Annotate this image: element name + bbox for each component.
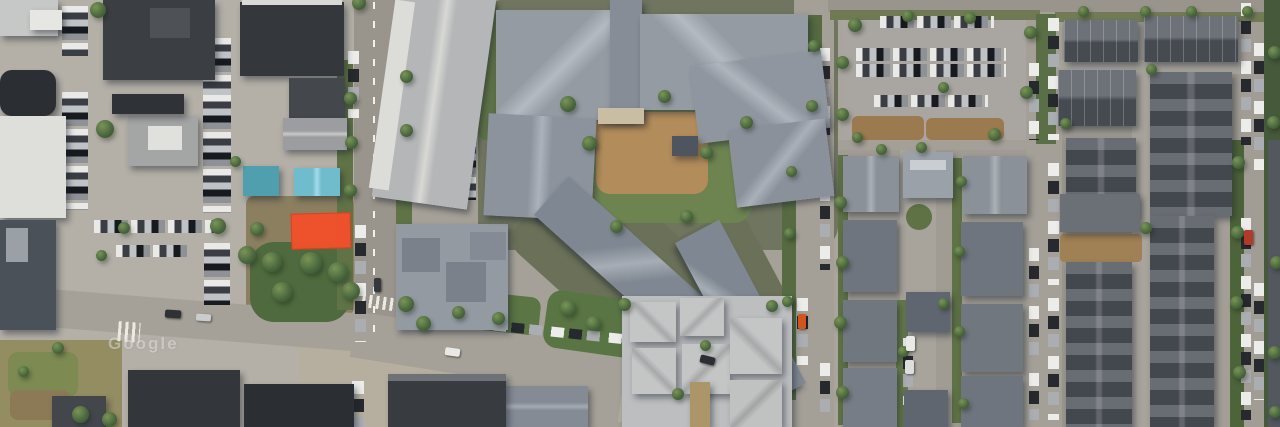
tree	[1267, 116, 1280, 129]
tree	[1233, 366, 1246, 379]
roof-detail	[150, 8, 190, 38]
tree	[1020, 86, 1033, 99]
condo-block	[961, 304, 1023, 372]
car	[798, 314, 806, 329]
quonset-building	[0, 70, 56, 116]
tree	[658, 90, 671, 103]
traffic-island	[906, 204, 932, 230]
parked-cars	[856, 64, 1006, 77]
tree	[836, 56, 849, 69]
tree	[784, 228, 795, 239]
tree	[680, 210, 693, 223]
tree	[416, 316, 431, 331]
tree	[272, 282, 292, 302]
tree	[938, 298, 949, 309]
industrial-building	[244, 384, 354, 427]
tree	[344, 184, 357, 197]
tree	[560, 300, 576, 316]
tree	[836, 386, 849, 399]
hip-roof	[730, 380, 782, 427]
tan-structure	[690, 382, 710, 427]
tree	[806, 100, 818, 112]
industrial-building	[30, 10, 62, 30]
car	[374, 278, 381, 292]
parked-cars	[874, 95, 988, 107]
tree	[836, 256, 849, 269]
tree	[1140, 222, 1152, 234]
dark-commercial-building	[388, 374, 506, 427]
tree	[238, 246, 256, 264]
tree	[988, 128, 1001, 141]
townhouse-row	[1144, 16, 1238, 62]
parked-cars	[1254, 280, 1264, 400]
condo-block	[843, 300, 897, 362]
drive-aisle	[838, 140, 1038, 150]
parked-cars	[856, 48, 1006, 61]
tree	[1230, 296, 1243, 309]
teal-roof-building	[243, 166, 279, 196]
tree	[398, 296, 414, 312]
tree	[328, 262, 348, 282]
roof-edge	[388, 374, 506, 381]
tree	[836, 108, 849, 121]
townhouse-partial	[1268, 140, 1280, 427]
parked-cars	[1241, 0, 1251, 145]
highlighted-parcel[interactable]	[291, 212, 352, 250]
tree	[400, 70, 413, 83]
parked-cars	[348, 48, 359, 118]
roof-detail	[148, 126, 182, 150]
teal-roof-building	[294, 168, 340, 196]
tree	[958, 398, 969, 409]
tree	[766, 300, 778, 312]
tree	[848, 18, 862, 32]
car	[905, 360, 914, 374]
tree	[786, 166, 797, 177]
tree	[902, 10, 914, 22]
condo-block	[843, 368, 897, 427]
parked-cars	[797, 295, 808, 365]
condo-block	[963, 156, 1027, 214]
parked-cars	[820, 360, 830, 420]
tree	[782, 296, 793, 307]
tree	[1270, 256, 1280, 269]
parked-cars	[1048, 160, 1059, 285]
townhouse-column	[1150, 72, 1232, 216]
parked-cars	[116, 245, 190, 257]
tree	[610, 220, 623, 233]
roof-detail	[6, 228, 28, 262]
tree	[345, 136, 358, 149]
tree	[300, 252, 322, 274]
tree	[210, 218, 226, 234]
tree	[1268, 346, 1280, 359]
car	[165, 309, 182, 318]
parked-cars	[1048, 295, 1059, 420]
roof-detail	[446, 262, 486, 302]
tree	[400, 124, 413, 137]
townhouse-column	[1066, 262, 1132, 427]
hip-roof	[632, 348, 676, 394]
hip-roof	[680, 298, 724, 336]
tree	[118, 222, 130, 234]
tree	[700, 340, 711, 351]
car	[906, 336, 915, 351]
tree	[1269, 406, 1280, 418]
tree	[1140, 6, 1151, 17]
townhouse-column	[1150, 216, 1214, 427]
roof-detail	[402, 238, 440, 272]
tree	[808, 40, 820, 52]
tree	[90, 2, 106, 18]
tree	[834, 316, 847, 329]
tree	[852, 132, 863, 143]
parked-cars	[62, 6, 88, 56]
parked-cars	[1241, 215, 1251, 420]
townhouse-row	[1064, 20, 1138, 62]
condo-block	[961, 376, 1023, 427]
tree	[954, 326, 965, 337]
flat-building	[1060, 194, 1140, 232]
warehouse-dark	[240, 2, 344, 76]
tree	[916, 142, 927, 153]
white-roof-warehouse	[0, 116, 66, 218]
tree	[262, 252, 282, 272]
tree	[876, 144, 887, 155]
tree	[1060, 118, 1071, 129]
commercial-building	[283, 118, 347, 150]
parked-cars	[820, 185, 830, 270]
tree	[672, 388, 684, 400]
tree	[96, 120, 114, 138]
tree	[18, 366, 29, 377]
tree	[1078, 6, 1089, 17]
hip-roof	[630, 302, 676, 342]
tree	[1232, 156, 1245, 169]
parked-cars	[94, 220, 214, 233]
parked-cars	[203, 95, 231, 213]
parked-cars	[355, 222, 366, 342]
roof-detail	[910, 160, 946, 170]
condo-block	[843, 220, 897, 292]
tree	[956, 176, 967, 187]
parked-cars	[1254, 40, 1264, 170]
tree	[72, 406, 89, 423]
tree	[492, 312, 505, 325]
parked-cars	[204, 243, 230, 305]
parked-cars	[880, 16, 994, 28]
courtyard-shed	[598, 108, 644, 124]
tree	[954, 246, 965, 257]
courtyard-shed	[672, 136, 698, 156]
tree	[250, 222, 264, 236]
google-watermark: Google	[108, 334, 179, 354]
tree	[618, 298, 631, 311]
parked-cars	[1029, 60, 1039, 140]
apartment-connector	[610, 0, 642, 118]
apartment-block-e2	[728, 118, 835, 207]
tree	[740, 116, 753, 129]
tree	[582, 136, 597, 151]
tree	[452, 306, 465, 319]
tree	[344, 92, 357, 105]
condo-block	[961, 222, 1023, 296]
roof-detail	[470, 232, 506, 260]
tree	[342, 282, 360, 300]
tree	[834, 196, 847, 209]
condo-block	[903, 152, 953, 198]
industrial-building	[112, 94, 184, 114]
tree	[1186, 6, 1197, 17]
parked-cars	[1029, 370, 1039, 420]
tree	[102, 412, 117, 427]
tree	[586, 316, 601, 331]
condo-block	[843, 156, 899, 212]
roof-edge	[242, 0, 342, 5]
tree	[1231, 226, 1244, 239]
industrial-building	[128, 370, 240, 427]
tree	[1146, 64, 1157, 75]
tree	[96, 250, 107, 261]
commercial-building	[289, 78, 345, 118]
parked-cars	[1029, 245, 1039, 355]
dirt-patch	[1060, 234, 1142, 262]
tree	[230, 156, 241, 167]
tree	[938, 82, 949, 93]
condo-block	[904, 390, 948, 427]
satellite-map[interactable]: Google	[0, 0, 1280, 427]
tree	[1242, 6, 1253, 17]
car	[196, 313, 211, 321]
hip-roof	[730, 318, 782, 374]
townhouse-row	[1058, 70, 1136, 126]
tree	[560, 96, 576, 112]
tree	[1024, 26, 1037, 39]
tree	[52, 342, 64, 354]
tree	[1268, 46, 1280, 59]
tree	[964, 12, 976, 24]
car	[1244, 230, 1253, 245]
tree	[700, 146, 713, 159]
